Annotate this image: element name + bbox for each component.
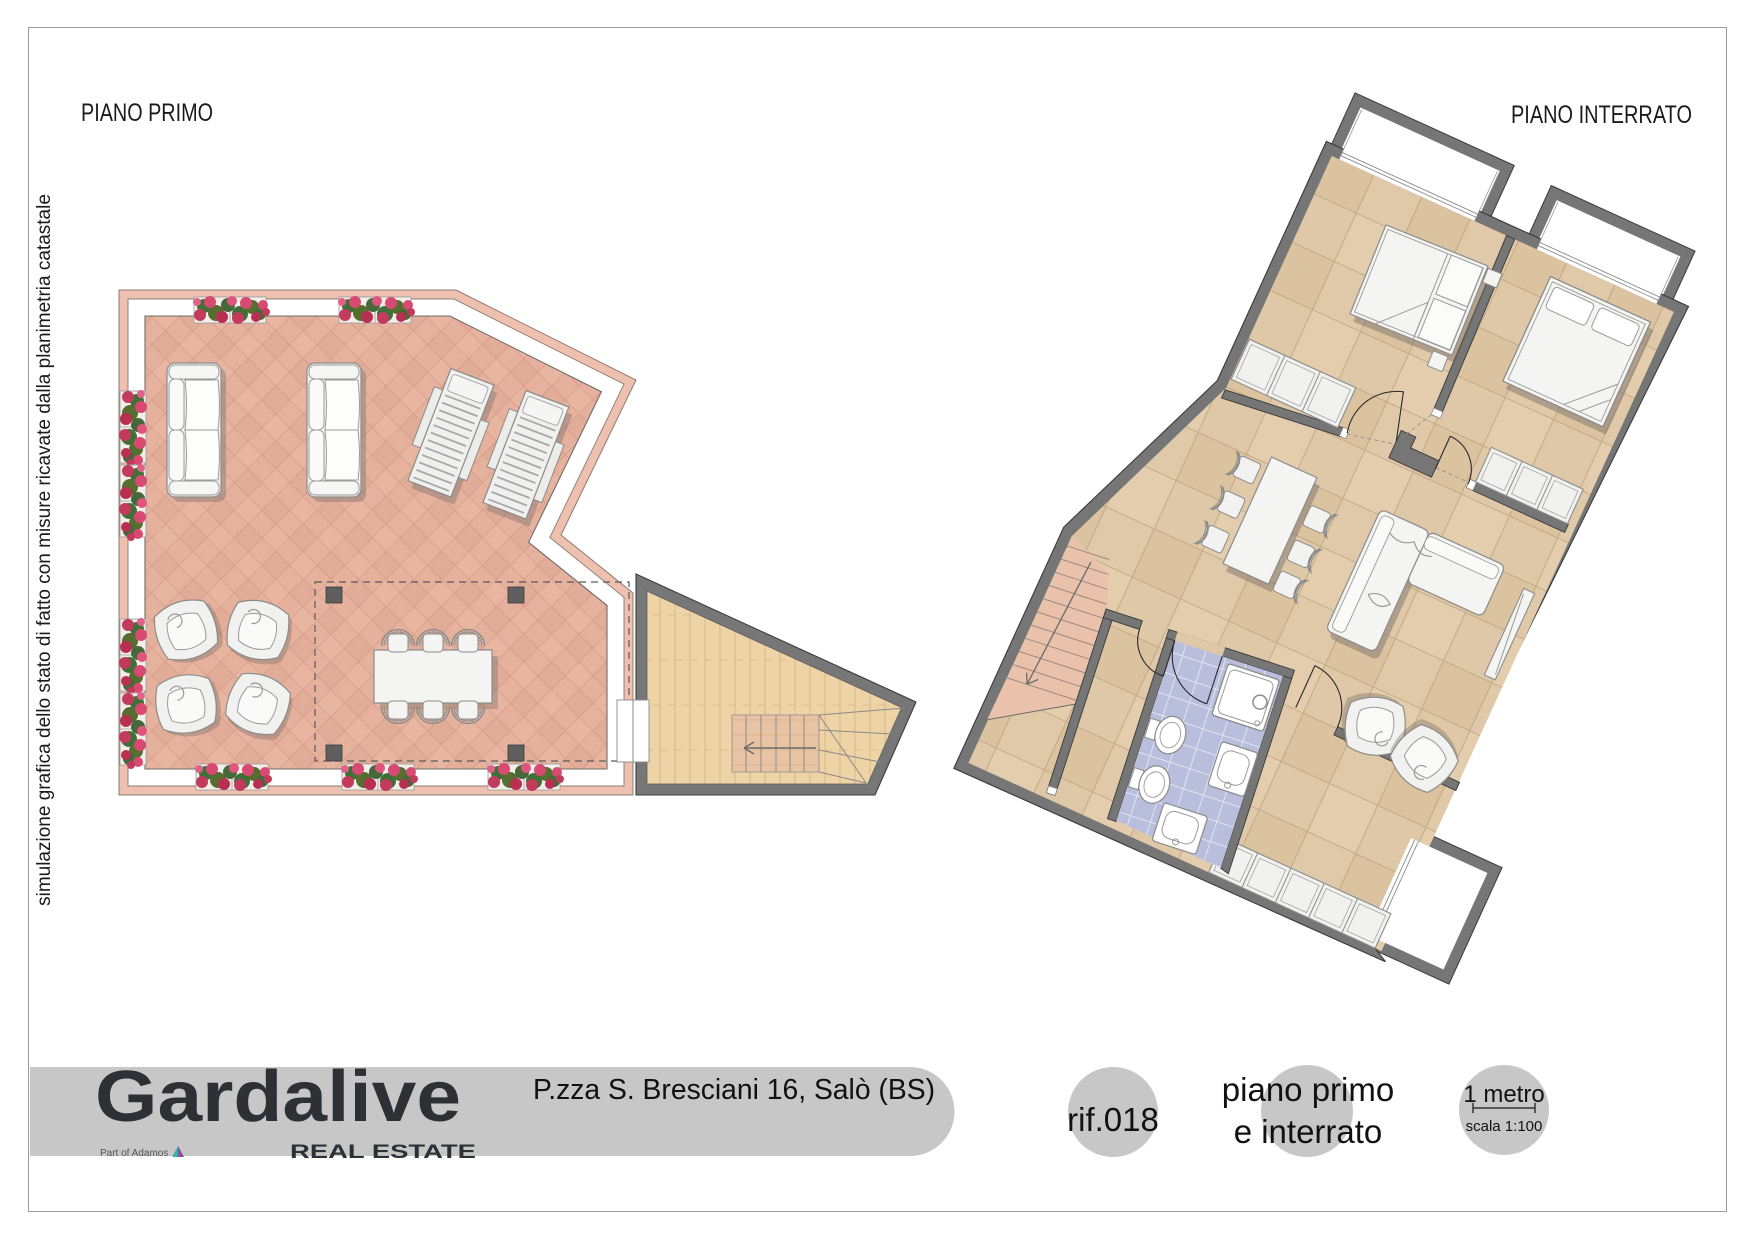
svg-text:P.zza S. Bresciani 16, Salò (B: P.zza S. Bresciani 16, Salò (BS) — [533, 1074, 935, 1106]
svg-text:PIANO PRIMO: PIANO PRIMO — [81, 99, 213, 127]
svg-text:REAL ESTATE: REAL ESTATE — [290, 1142, 476, 1163]
svg-text:piano primo: piano primo — [1222, 1071, 1394, 1108]
svg-text:simulazione grafica dello stat: simulazione grafica dello stato di fatto… — [34, 194, 55, 906]
svg-text:e interrato: e interrato — [1234, 1113, 1383, 1150]
svg-text:scala 1:100: scala 1:100 — [1466, 1118, 1543, 1135]
svg-text:1 metro: 1 metro — [1463, 1081, 1544, 1108]
svg-text:Gardalive: Gardalive — [95, 1057, 461, 1137]
svg-text:PIANO INTERRATO: PIANO INTERRATO — [1511, 101, 1692, 129]
svg-text:Part of Adamos: Part of Adamos — [100, 1148, 168, 1159]
svg-text:rif.018: rif.018 — [1067, 1101, 1159, 1138]
